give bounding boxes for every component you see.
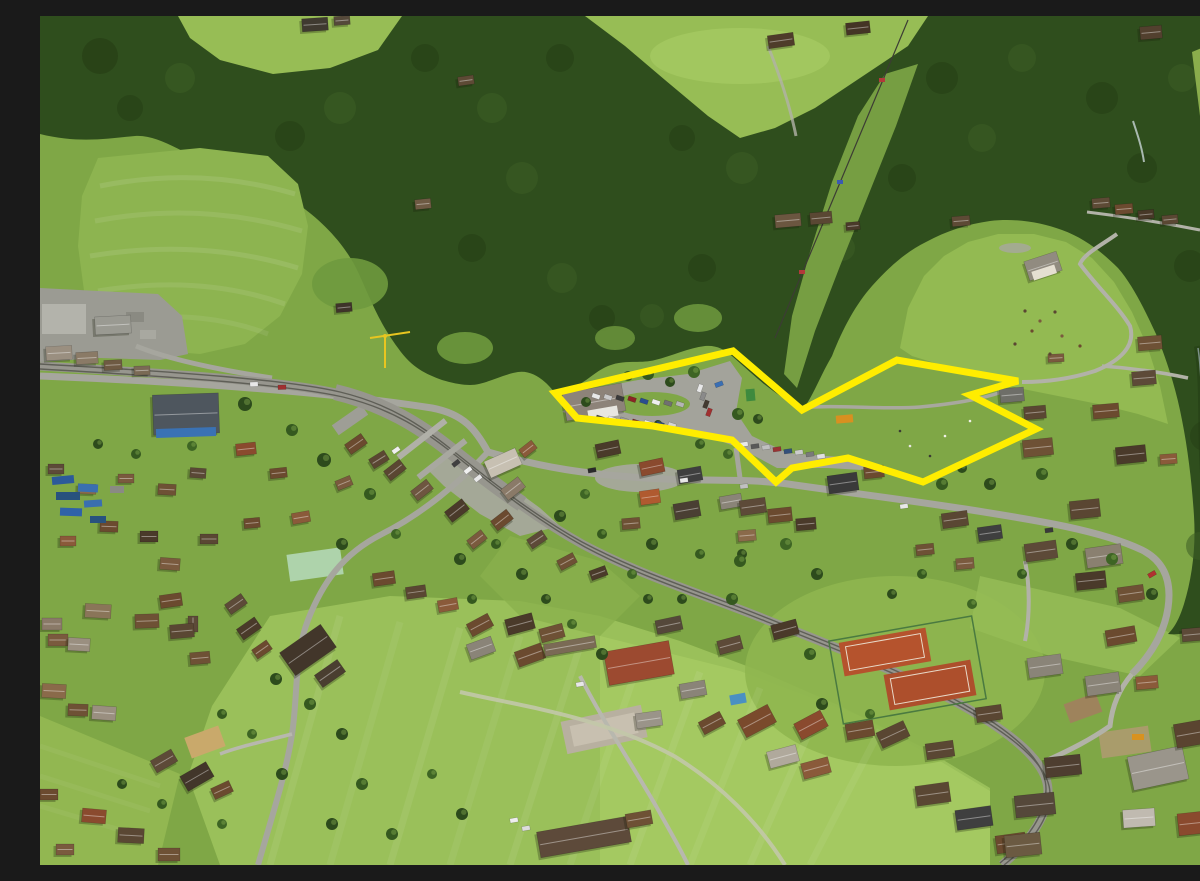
chalet [765, 507, 793, 526]
tree-highlight [323, 455, 329, 461]
apartment [73, 351, 98, 366]
chalet [46, 634, 69, 648]
chalet [198, 534, 219, 546]
canopy [669, 125, 695, 151]
tree-highlight [585, 398, 590, 403]
tree-highlight [559, 512, 564, 517]
chalet [187, 651, 211, 667]
chalet [412, 198, 432, 212]
canopy [726, 152, 758, 184]
blue-material-stack [60, 508, 82, 517]
chalet [157, 557, 180, 573]
tree-highlight [651, 540, 656, 545]
car [784, 448, 793, 454]
chalet [79, 808, 107, 826]
chalet [241, 517, 260, 531]
tree-highlight [1071, 540, 1076, 545]
tree-highlight [731, 595, 736, 600]
green-truck [745, 389, 755, 402]
orange-container [1132, 734, 1144, 740]
hamlet-house [949, 215, 970, 229]
apartment [1011, 792, 1056, 820]
apartment [1174, 810, 1200, 838]
canopy [688, 254, 716, 282]
cow [1048, 352, 1051, 355]
tree-highlight [331, 820, 336, 825]
chalet [619, 517, 641, 532]
aerial-photo-canvas [40, 16, 1200, 865]
person [909, 445, 912, 448]
chalet [156, 848, 181, 863]
tree-highlight [221, 820, 226, 825]
tree-highlight [785, 540, 790, 545]
car [806, 451, 815, 457]
tree-highlight [461, 810, 466, 815]
car [740, 484, 748, 489]
car [751, 443, 760, 449]
tree-highlight [275, 675, 280, 680]
car [795, 449, 804, 455]
cow [1053, 310, 1056, 313]
chalet [65, 704, 88, 719]
tree-highlight [135, 450, 140, 455]
tree-highlight [341, 730, 346, 735]
tree-highlight [244, 399, 250, 405]
chalet [913, 543, 935, 558]
chalet [267, 467, 288, 481]
tree-highlight [584, 490, 589, 495]
tree-highlight [681, 595, 686, 600]
tree-highlight [1111, 555, 1116, 560]
tree-highlight [1151, 590, 1156, 595]
chalet [65, 637, 90, 653]
canopy [458, 234, 486, 262]
tree-highlight [971, 600, 976, 605]
apartment [43, 345, 72, 362]
lift-cabin [837, 180, 843, 184]
gravel-heap [140, 330, 156, 339]
canopy [888, 164, 916, 192]
canopy [506, 162, 538, 194]
forest-gap [437, 332, 493, 364]
tree-highlight [757, 415, 762, 420]
tree-highlight [989, 480, 994, 485]
canopy [640, 304, 664, 328]
canopy [968, 124, 996, 152]
tree-highlight [221, 710, 226, 715]
tree-highlight [727, 450, 732, 455]
forest-gap [674, 304, 722, 332]
blue-material-stack [90, 516, 106, 523]
chalet [1179, 627, 1200, 644]
cow [1078, 344, 1081, 347]
gray-hall [92, 315, 131, 337]
canopy [324, 92, 356, 124]
tree-highlight [459, 555, 464, 560]
chalet [138, 531, 159, 544]
tree-highlight [1021, 570, 1026, 575]
rock-wall [999, 243, 1031, 253]
cow [1023, 309, 1026, 312]
chalet [40, 789, 58, 802]
chalet [997, 387, 1025, 405]
tree-highlight [601, 650, 606, 655]
chalet [1113, 444, 1147, 466]
tree-highlight [161, 800, 166, 805]
chalet [333, 302, 352, 315]
tree-highlight [309, 700, 314, 705]
tree-highlight [741, 550, 746, 555]
apartment [1067, 498, 1101, 521]
car [817, 453, 826, 459]
hamlet-house [1089, 197, 1110, 211]
canopy [82, 38, 118, 74]
tree-highlight [495, 540, 500, 545]
crane-pivot [383, 334, 387, 338]
tree-highlight [521, 570, 526, 575]
aerial-photograph [40, 16, 1200, 865]
tree-highlight [739, 557, 744, 562]
tree-highlight [191, 442, 196, 447]
forest-gap [595, 326, 635, 350]
car [278, 385, 286, 390]
blue-material-stack [84, 499, 102, 507]
tree-highlight [545, 595, 550, 600]
canopy [1008, 44, 1036, 72]
tree-highlight [601, 530, 606, 535]
lift-cabin [799, 270, 805, 274]
tree-highlight [369, 490, 374, 495]
hamlet-house [1112, 203, 1133, 217]
tree-highlight [821, 700, 826, 705]
chalet [132, 614, 159, 631]
tree-highlight [431, 770, 436, 775]
tree-highlight [699, 550, 704, 555]
tree-highlight [647, 595, 652, 600]
tree-highlight [699, 440, 704, 445]
car [773, 446, 782, 452]
car [1045, 527, 1054, 533]
canopy [926, 62, 958, 94]
chalet [953, 557, 975, 572]
hamlet-house [1159, 214, 1178, 227]
chalet [40, 618, 62, 632]
tree-highlight [395, 530, 400, 535]
chalet [1073, 570, 1107, 592]
canopy [1086, 82, 1118, 114]
chalet [101, 360, 122, 373]
tree-highlight [1041, 470, 1046, 475]
chalet [1020, 437, 1054, 459]
cow [1038, 319, 1041, 322]
person [929, 455, 932, 458]
chalet [89, 705, 117, 723]
tree-highlight [941, 480, 946, 485]
canopy [546, 44, 574, 72]
tree-highlight [471, 595, 476, 600]
chalet [116, 474, 135, 485]
tree-highlight [361, 780, 366, 785]
canopy [477, 93, 507, 123]
chalet [167, 623, 195, 641]
meadow-top-bright [650, 28, 830, 84]
tree-highlight [737, 410, 742, 415]
chalet [155, 483, 176, 497]
canopy [1168, 64, 1196, 92]
chalet [40, 683, 66, 700]
tree-highlight [291, 426, 296, 431]
canopy [547, 263, 577, 293]
tree-highlight [341, 540, 346, 545]
chalet [131, 366, 150, 378]
chalet [1129, 370, 1157, 388]
chalet [1133, 675, 1159, 692]
chalet [82, 603, 111, 620]
tree-highlight [571, 620, 576, 625]
tree-highlight [891, 590, 896, 595]
tree-highlight [921, 570, 926, 575]
canopy [275, 121, 305, 151]
barn [331, 16, 350, 28]
tree-highlight [631, 570, 636, 575]
chalet [735, 529, 757, 544]
hay-barn [1135, 335, 1163, 353]
apartment [1042, 754, 1083, 780]
tree-highlight [97, 440, 102, 445]
white-apartment [1120, 808, 1156, 830]
chalet [46, 464, 65, 476]
barn [299, 17, 328, 34]
forest-gap [312, 258, 388, 310]
cow [1013, 342, 1016, 345]
cow [1030, 329, 1033, 332]
chalet [1137, 25, 1163, 42]
tree-highlight [869, 710, 874, 715]
barn [843, 21, 871, 38]
apartment [1001, 832, 1042, 860]
tree-highlight [816, 570, 821, 575]
canopy [1127, 153, 1157, 183]
chalet [115, 827, 144, 845]
person [899, 430, 902, 433]
tree-highlight [391, 830, 396, 835]
hillside-house [807, 211, 833, 227]
canopy [117, 95, 143, 121]
pallet-stack [110, 486, 124, 493]
blue-material-stack [78, 483, 98, 492]
car [900, 503, 909, 509]
chalet [1157, 453, 1177, 466]
chalet [793, 517, 817, 533]
tree-highlight [281, 770, 286, 775]
tree-highlight [693, 368, 698, 373]
tree-highlight [809, 650, 814, 655]
person [944, 435, 947, 438]
car [250, 382, 258, 387]
cream-house [637, 489, 662, 508]
car [762, 444, 771, 450]
person [969, 420, 972, 423]
chalet [1090, 403, 1120, 421]
tree-highlight [669, 378, 674, 383]
hamlet-house [1135, 209, 1154, 222]
car [680, 477, 689, 483]
hay-shed [1045, 354, 1064, 365]
hillside-house [843, 221, 860, 232]
chalet [54, 844, 75, 857]
tree-highlight [251, 730, 256, 735]
tree-highlight [121, 780, 126, 785]
canopy [411, 44, 439, 72]
hillside-house [772, 213, 802, 230]
orange-container [836, 414, 854, 423]
canopy [165, 63, 195, 93]
blue-material-stack [56, 492, 80, 500]
lift-cabin [879, 78, 885, 82]
chalet [233, 442, 257, 458]
cow [1060, 334, 1063, 337]
sawmill-hall [42, 304, 86, 334]
chalet [58, 536, 77, 548]
